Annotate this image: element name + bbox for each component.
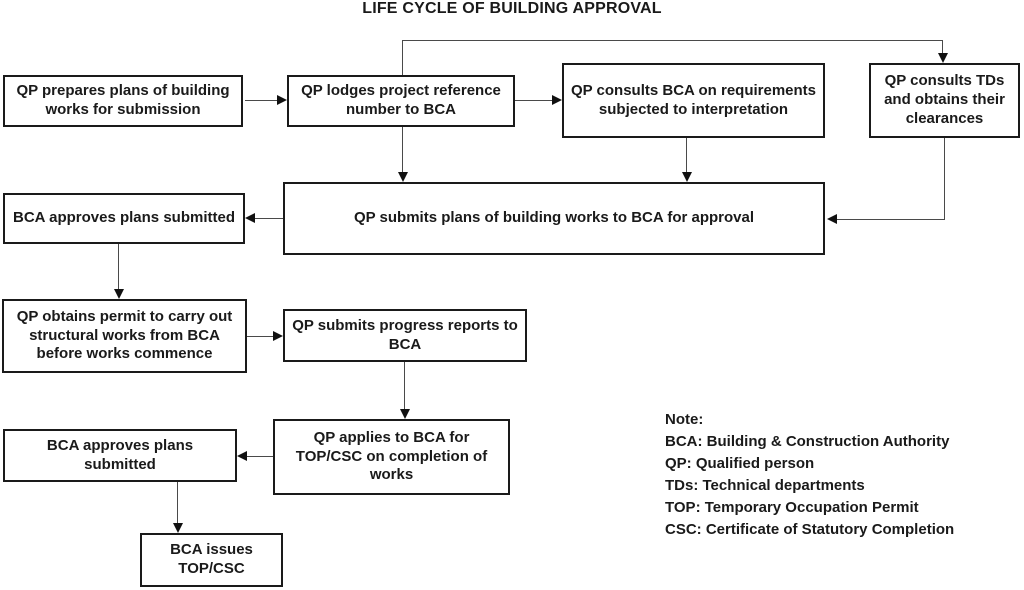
legend-line-top: TOP: Temporary Occupation Permit [665,497,954,519]
legend-line-bca: BCA: Building & Construction Authority [665,431,954,453]
arrowhead-left-icon [827,214,837,224]
connector-approve2-to-issue-line [177,482,178,523]
arrowhead-right-icon [277,95,287,105]
flow-node-bca-approves-2: BCA approves plans submitted [3,429,237,482]
connector-submit-to-approve1-line [255,218,283,219]
flow-node-prepare-plans: QP prepares plans of building works for … [3,75,243,127]
connector-consulttds-left-line [837,219,945,220]
legend-line-csc: CSC: Certificate of Statutory Completion [665,519,954,541]
arrowhead-left-icon [245,213,255,223]
connector-prepare-to-lodge-line [245,100,277,101]
arrowhead-down-icon [114,289,124,299]
flow-node-consult-bca: QP consults BCA on requirements subjecte… [562,63,825,138]
legend-heading: Note: [665,409,954,431]
arrowhead-down-icon [173,523,183,533]
flowchart-canvas: LIFE CYCLE OF BUILDING APPROVAL QP prepa… [0,0,1024,590]
arrowhead-right-icon [552,95,562,105]
arrowhead-down-icon [400,409,410,419]
connector-consulttds-drop-line [942,40,943,54]
connector-consulttds-down-line [944,138,945,219]
flow-node-issue-top-csc: BCA issues TOP/CSC [140,533,283,587]
flow-node-consult-tds: QP consults TDs and obtains their cleara… [869,63,1020,138]
flow-node-bca-approves-1: BCA approves plans submitted [3,193,245,244]
flow-node-progress-reports: QP submits progress reports to BCA [283,309,527,362]
diagram-title: LIFE CYCLE OF BUILDING APPROVAL [0,0,1024,18]
arrowhead-left-icon [237,451,247,461]
connector-top-span-line [402,40,943,41]
connector-approve1-to-permit-line [118,244,119,289]
flow-node-submit-plans: QP submits plans of building works to BC… [283,182,825,255]
connector-lodge-to-submit-line [402,127,403,173]
arrowhead-right-icon [273,331,283,341]
legend-line-qp: QP: Qualified person [665,453,954,475]
legend-line-tds: TDs: Technical departments [665,475,954,497]
arrowhead-down-icon [938,53,948,63]
flow-node-obtain-permit: QP obtains permit to carry out structura… [2,299,247,373]
connector-apply-to-approve2-line [247,456,273,457]
connector-lodge-top-riser-line [402,40,403,75]
connector-consultbca-to-submit-line [686,138,687,173]
connector-lodge-to-consultbca-line [515,100,552,101]
flow-node-lodge-reference: QP lodges project reference number to BC… [287,75,515,127]
arrowhead-down-icon [682,172,692,182]
connector-progress-to-apply-line [404,362,405,409]
arrowhead-down-icon [398,172,408,182]
flow-node-apply-top-csc: QP applies to BCA for TOP/CSC on complet… [273,419,510,495]
legend-note: Note: BCA: Building & Construction Autho… [665,409,954,541]
connector-permit-to-progress-line [247,336,273,337]
